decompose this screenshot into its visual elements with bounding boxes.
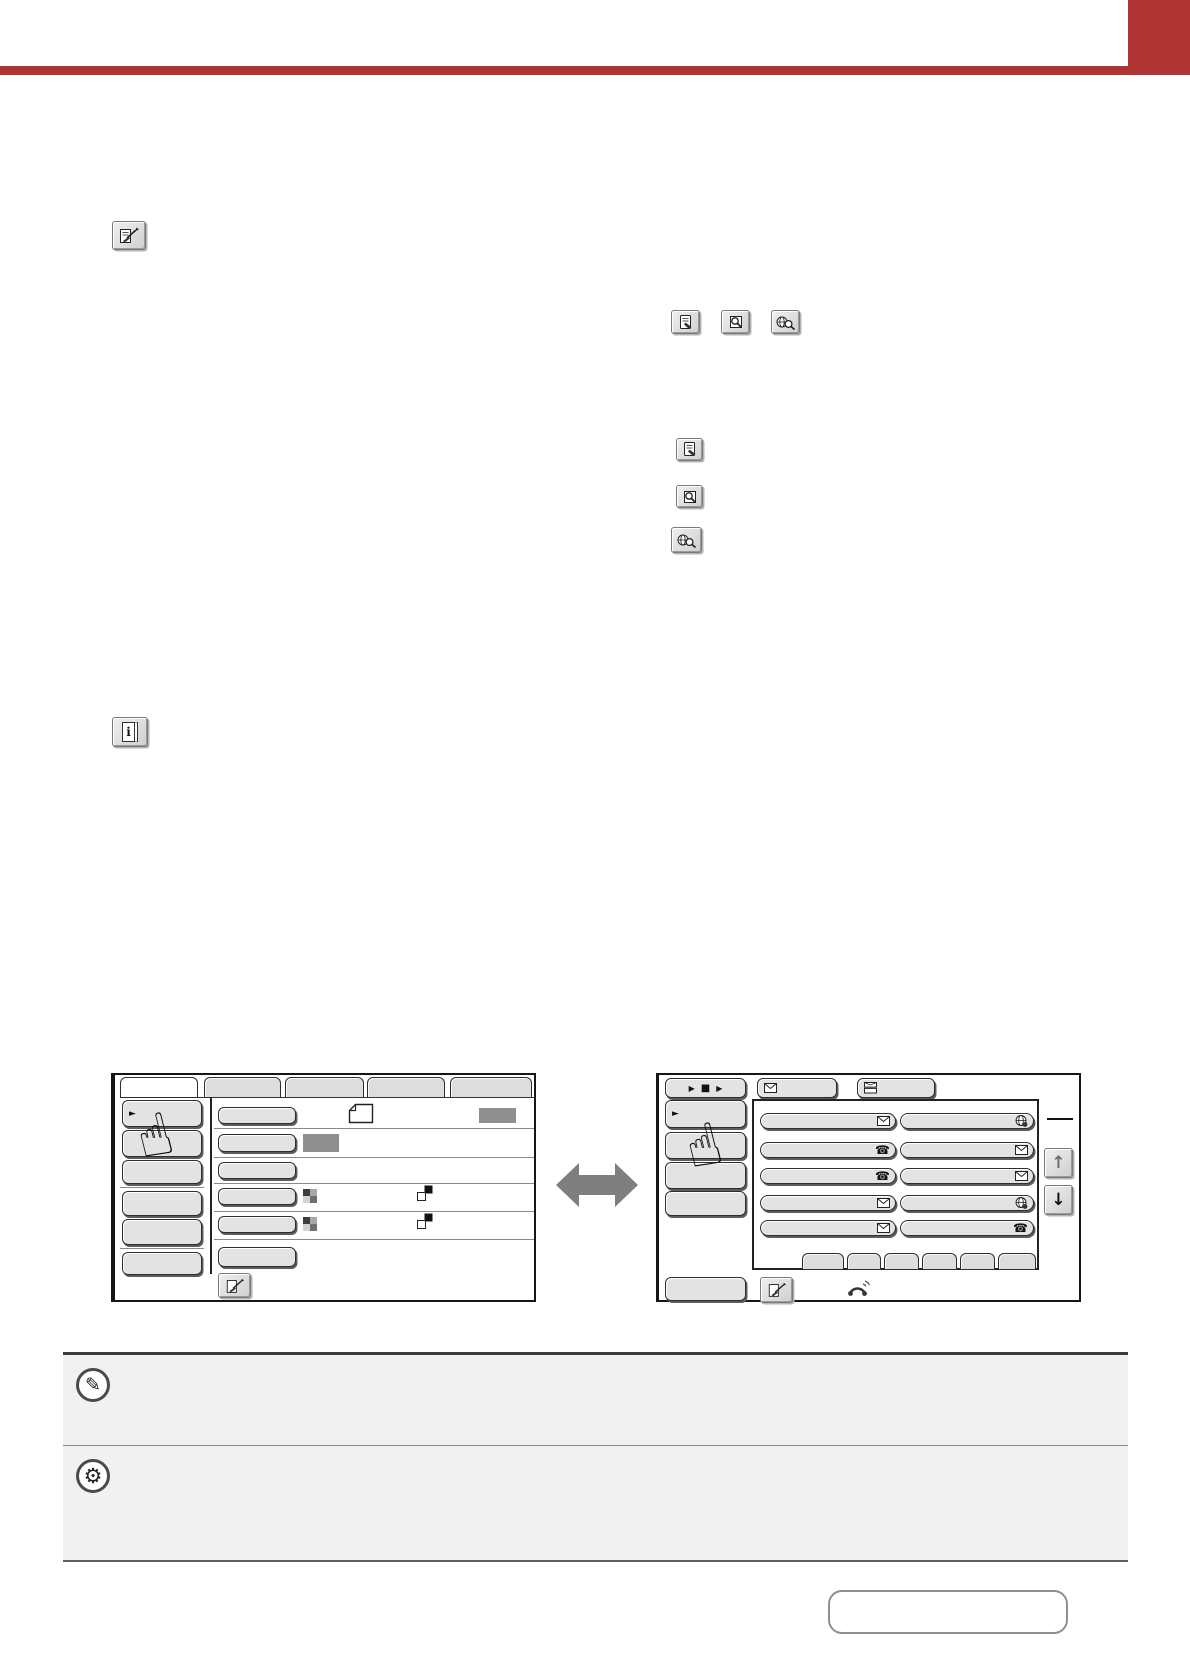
panel-divider (210, 1097, 212, 1274)
header-red-bar (0, 66, 1190, 75)
play-icon: ▶ (716, 1084, 722, 1093)
contents-link-button[interactable] (828, 1590, 1068, 1634)
color-mode-checker-icon (303, 1189, 317, 1203)
address-tab-cc (857, 1078, 935, 1098)
double-arrow-icon (556, 1159, 638, 1211)
address-key (900, 1142, 1034, 1158)
system-settings-gear-icon: ⚙ (76, 1459, 110, 1493)
address-key (760, 1195, 896, 1211)
address-tab-to (757, 1078, 837, 1098)
menu-key-4 (665, 1191, 746, 1216)
address-key: ☎ (900, 1220, 1034, 1236)
menu-key-5 (122, 1219, 202, 1245)
document-pen-icon (681, 441, 699, 458)
index-tab-4 (922, 1253, 957, 1270)
magnifier-icon (681, 489, 698, 505)
document-pen-arrow-icon (225, 1277, 245, 1295)
index-tab-6 (998, 1253, 1036, 1270)
stacked-mail-icon (864, 1082, 877, 1094)
note-boxes: ✎ ⚙ (63, 1352, 1128, 1562)
setting-key-row3 (218, 1162, 296, 1179)
condition-settings-screen: ► (111, 1073, 536, 1302)
stop-icon: ■ (701, 1083, 710, 1094)
scroll-down-key: ↓ (1044, 1185, 1073, 1215)
up-arrow-icon: ↑ (1051, 1153, 1065, 1173)
fax-phone-icon: ☎ (875, 1144, 890, 1156)
setting-key-row5 (218, 1216, 296, 1233)
address-key: ☎ (760, 1142, 896, 1158)
value-box (303, 1134, 339, 1152)
row-separator (214, 1157, 534, 1158)
settings-note-box: ⚙ (63, 1446, 1128, 1560)
email-icon (764, 1083, 777, 1093)
address-search-key-icon (676, 485, 703, 508)
address-key (760, 1113, 896, 1129)
global-address-search-key-icon (771, 310, 800, 334)
address-key (900, 1113, 1034, 1129)
email-icon (1015, 1145, 1028, 1155)
address-review-key-icon (760, 1277, 793, 1303)
document-edit-key-icon (676, 438, 703, 461)
row-separator (214, 1183, 534, 1184)
down-arrow-icon: ↓ (1051, 1190, 1065, 1210)
email-icon (1015, 1171, 1028, 1181)
email-icon (877, 1223, 890, 1233)
document-pen-icon (677, 314, 695, 331)
global-address-search-key-icon (671, 527, 702, 553)
menu-key-5 (665, 1277, 746, 1301)
original-paper-icon (348, 1103, 374, 1124)
info-book-icon: i (122, 722, 138, 742)
scroll-up-key: ↑ (1044, 1148, 1073, 1178)
email-icon (877, 1198, 890, 1208)
fax-phone-icon: ☎ (875, 1170, 890, 1182)
tab-baseline (198, 1097, 534, 1098)
tab-3 (285, 1077, 364, 1098)
row-separator (214, 1128, 534, 1129)
speaker-handset-icon (847, 1279, 871, 1299)
document-edit-key-icon (671, 310, 700, 334)
magnifier-icon (727, 314, 744, 330)
menu-separator (120, 1187, 204, 1188)
index-tab-3 (884, 1253, 919, 1270)
menu-key-6 (122, 1252, 202, 1275)
address-key (900, 1195, 1034, 1211)
magnifier-globe-icon (676, 532, 698, 549)
color-mode-checker-icon (303, 1217, 317, 1231)
note-box: ✎ (63, 1355, 1128, 1446)
tab-selected (120, 1077, 198, 1098)
address-key (760, 1220, 896, 1236)
value-box (479, 1108, 516, 1123)
exposure-squares-icon (417, 1185, 433, 1201)
address-key (900, 1168, 1034, 1184)
information-key-icon: i (112, 717, 148, 747)
resend-key: ▶ ■ ▶ (665, 1078, 746, 1098)
email-icon (877, 1116, 890, 1126)
setting-key-row4 (218, 1188, 296, 1205)
fax-phone-icon: ☎ (1013, 1222, 1028, 1234)
note-pencil-icon: ✎ (76, 1368, 110, 1402)
address-search-key-icon (721, 310, 750, 334)
address-review-key-icon (112, 221, 146, 250)
internet-fax-globe-icon (1015, 1197, 1028, 1210)
page-indicator-line (1047, 1118, 1073, 1120)
setting-key-row2 (218, 1134, 296, 1152)
setting-key-row6 (218, 1247, 296, 1267)
address-key: ☎ (760, 1168, 896, 1184)
index-tab-5 (960, 1253, 995, 1270)
tab-4 (367, 1077, 445, 1098)
manual-page: i ► (0, 0, 1190, 1656)
row-separator (214, 1239, 534, 1240)
index-tab-2 (847, 1253, 881, 1270)
document-pen-arrow-icon (118, 226, 140, 245)
menu-key-4 (122, 1191, 202, 1216)
play-icon: ▶ (689, 1084, 695, 1093)
tab-2 (204, 1077, 281, 1098)
tab-5 (450, 1077, 532, 1098)
address-review-key-icon (218, 1273, 251, 1298)
magnifier-globe-icon (775, 314, 797, 331)
exposure-squares-icon (417, 1213, 433, 1229)
index-tab-1 (802, 1253, 844, 1270)
header-red-block (1128, 0, 1190, 75)
address-book-screen: ▶ ■ ▶ (656, 1073, 1081, 1302)
internet-fax-globe-icon (1015, 1115, 1028, 1128)
document-pen-arrow-icon (767, 1281, 787, 1299)
row-separator (214, 1211, 534, 1212)
setting-key-row1 (218, 1107, 296, 1124)
menu-separator (120, 1248, 204, 1249)
